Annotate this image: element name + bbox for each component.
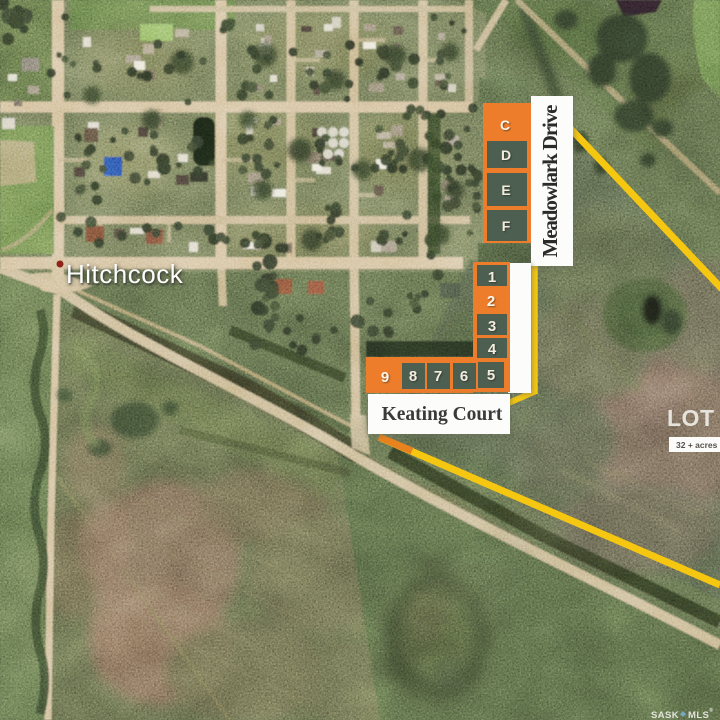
svg-text:9: 9 [381,369,389,386]
svg-text:3: 3 [488,318,496,335]
svg-text:®: ® [709,707,713,714]
svg-text:Keating Court: Keating Court [382,404,503,425]
svg-text:C: C [500,117,510,133]
svg-text:Meadowlark Drive: Meadowlark Drive [538,105,562,258]
svg-text:32 + acres: 32 + acres [676,440,718,450]
svg-text:7: 7 [434,368,442,385]
svg-text:LOT 1: LOT 1 [667,405,720,431]
svg-text:E: E [501,182,510,198]
svg-text:Hitchcock: Hitchcock [66,259,184,289]
svg-text:4: 4 [488,341,497,358]
svg-text:5: 5 [487,367,495,384]
svg-text:SASK: SASK [651,710,679,720]
svg-text:F: F [502,218,511,234]
svg-text:2: 2 [487,293,495,310]
svg-text:6: 6 [460,368,468,385]
svg-text:8: 8 [409,368,417,385]
svg-text:1: 1 [488,269,496,286]
svg-text:D: D [501,147,511,163]
svg-text:MLS: MLS [688,710,709,720]
